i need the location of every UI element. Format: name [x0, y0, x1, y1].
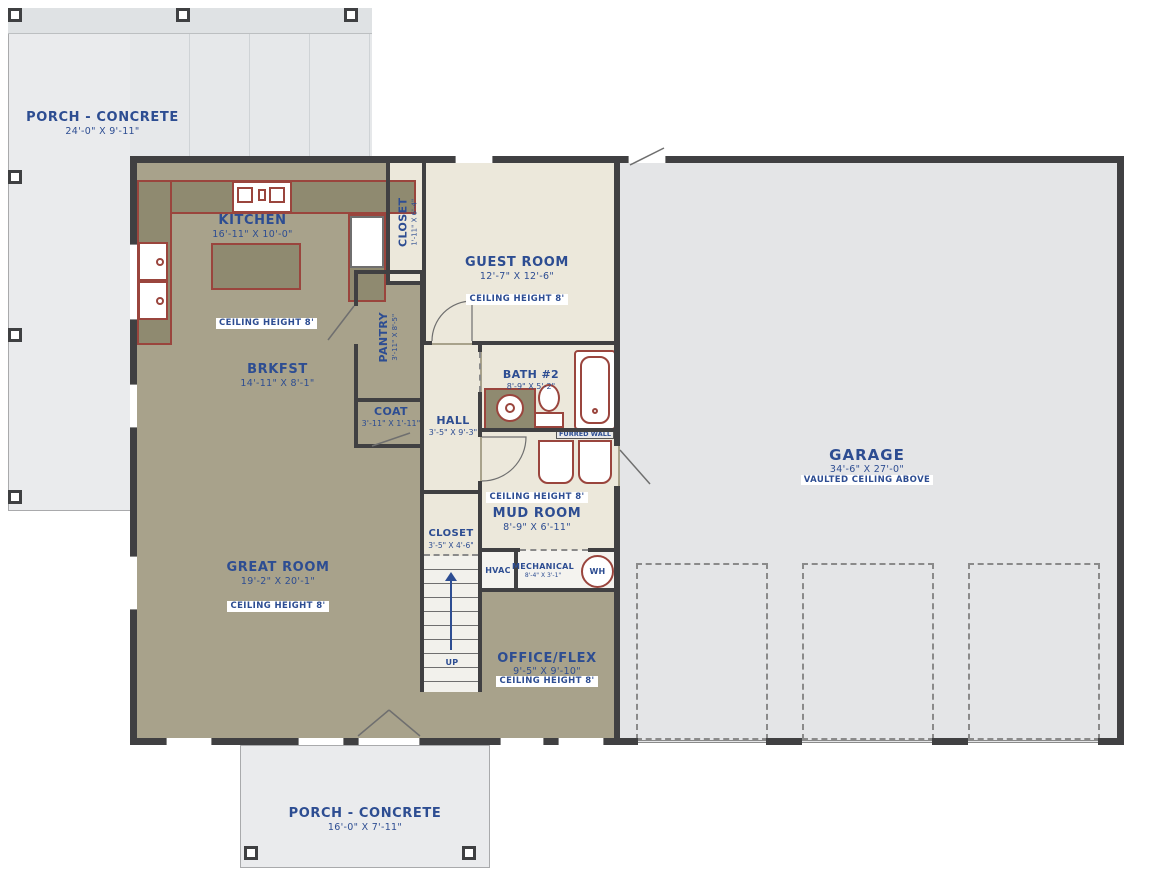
dryer-icon	[578, 440, 612, 484]
wall	[614, 162, 620, 446]
guest-room-dims: 12'-7" X 12'-6"	[442, 271, 592, 283]
mechanical-label: MECHANICAL 8'-4" X 3'-1"	[512, 562, 574, 580]
wall	[420, 272, 424, 492]
porch-post	[462, 846, 476, 860]
wall	[472, 341, 618, 345]
mud-room-dims: 8'-9" X 6'-11"	[472, 522, 602, 534]
closet-top-dims: 1'-11" X 6'-4"	[411, 197, 420, 246]
mud-room-ceiling: CEILING HEIGHT 8'	[486, 492, 587, 503]
stair-closet-dims: 3'-5" X 4'-6"	[421, 541, 481, 550]
garage-bay-outline	[802, 563, 934, 740]
sink-icon	[138, 281, 168, 320]
mud-room-name: MUD ROOM	[472, 506, 602, 522]
office-label: OFFICE/FLEX 9'-5" X 9'-10" CEILING HEIGH…	[477, 651, 617, 688]
coat-name: COAT	[358, 405, 424, 419]
wall	[354, 344, 358, 448]
porch-bottom-label: PORCH - CONCRETE 16'-0" X 7'-11"	[280, 806, 450, 834]
porch-top-dims: 24'-0" X 9'-11"	[20, 126, 185, 138]
bath2-dims: 8'-9" X 5'-2"	[488, 382, 574, 392]
garage-door	[802, 740, 932, 743]
window	[166, 738, 212, 745]
wall	[614, 486, 620, 745]
stair-closet-name: CLOSET	[421, 528, 481, 541]
wall	[932, 738, 968, 745]
toilet-tank-icon	[534, 412, 564, 428]
porch-top-name: PORCH - CONCRETE	[20, 110, 185, 126]
pantry-name: PANTRY	[377, 312, 391, 363]
porch-post	[344, 8, 358, 22]
wall	[482, 428, 618, 432]
wall	[1117, 156, 1124, 745]
kitchen-label: KITCHEN 16'-11" X 10'-0"	[180, 213, 325, 241]
guest-room-name: GUEST ROOM	[442, 255, 592, 271]
washer-icon	[538, 440, 574, 484]
window	[500, 738, 544, 745]
stairs-up-label: UP	[436, 658, 468, 668]
pantry-dims: 3'-11" X 8'-5"	[390, 312, 399, 363]
closet-top-label: CLOSET 1'-11" X 6'-4"	[388, 172, 428, 272]
porch-post	[244, 846, 258, 860]
window	[298, 738, 344, 745]
coat-dims: 3'-11" X 1'-11"	[358, 419, 424, 429]
range-icon	[232, 181, 292, 213]
brkfst-label: BRKFST 14'-11" X 8'-1"	[205, 362, 350, 390]
up-arrow-icon	[450, 578, 452, 650]
fridge-icon	[350, 216, 384, 268]
vanity-sink-icon	[496, 394, 524, 422]
pantry-label: PANTRY 3'-11" X 8'-5"	[360, 290, 416, 385]
window	[130, 384, 137, 428]
wall	[420, 492, 424, 692]
door-opening	[628, 156, 666, 163]
window	[455, 156, 493, 163]
porch-post	[176, 8, 190, 22]
wall	[478, 345, 482, 352]
hvac-label: HVAC	[482, 550, 514, 592]
guest-room-floor	[426, 162, 618, 343]
water-heater-icon: WH	[581, 555, 614, 588]
great-room-name: GREAT ROOM	[203, 560, 353, 576]
wall	[618, 738, 638, 745]
porch-bottom-name: PORCH - CONCRETE	[280, 806, 450, 822]
window	[130, 556, 137, 610]
window	[558, 738, 604, 745]
great-room-label: GREAT ROOM 19'-2" X 20'-1" CEILING HEIGH…	[203, 560, 353, 613]
porch-post	[8, 170, 22, 184]
stair-closet-label: CLOSET 3'-5" X 4'-6"	[421, 528, 481, 550]
garage-bay-outline	[636, 563, 768, 740]
mechanical-dims: 8'-4" X 3'-1"	[512, 572, 574, 580]
door-opening	[358, 738, 420, 745]
mud-room-label: CEILING HEIGHT 8' MUD ROOM 8'-9" X 6'-11…	[472, 484, 602, 534]
porch-ceiling-grid	[130, 34, 372, 160]
porch-post	[8, 328, 22, 342]
garage-bay-outline	[968, 563, 1100, 740]
wall	[424, 341, 432, 345]
wall	[1098, 738, 1124, 745]
wall	[766, 738, 802, 745]
hall-label: HALL 3'-5" X 9'-3"	[418, 414, 488, 438]
closet-top-name: CLOSET	[397, 197, 411, 246]
garage-door	[638, 740, 766, 743]
bathtub-icon	[574, 350, 616, 430]
great-room-dims: 19'-2" X 20'-1"	[203, 576, 353, 588]
bath2-name: BATH #2	[488, 368, 574, 382]
threshold	[520, 549, 588, 551]
hall-name: HALL	[418, 414, 488, 428]
office-name: OFFICE/FLEX	[477, 651, 617, 667]
brkfst-dims: 14'-11" X 8'-1"	[205, 378, 350, 390]
floor-plan: PORCH - CONCRETE 24'-0" X 9'-11" PORCH -…	[0, 0, 1157, 880]
bath2-label: BATH #2 8'-9" X 5'-2"	[488, 368, 574, 392]
garage-label: GARAGE 34'-6" X 27'-0" VAULTED CEILING A…	[792, 446, 942, 487]
wall	[130, 156, 1124, 163]
garage-door	[968, 740, 1098, 743]
up-arrow-head-icon	[445, 572, 457, 581]
pocket-door	[479, 352, 481, 392]
porch-roof-band	[8, 8, 372, 34]
wall	[354, 444, 424, 448]
garage-name: GARAGE	[792, 446, 942, 465]
kitchen-ceiling: CEILING HEIGHT 8'	[216, 310, 292, 330]
brkfst-name: BRKFST	[205, 362, 350, 378]
guest-room-label: GUEST ROOM 12'-7" X 12'-6" CEILING HEIGH…	[442, 255, 592, 306]
great-room-ceiling: CEILING HEIGHT 8'	[227, 601, 328, 612]
guest-room-ceiling: CEILING HEIGHT 8'	[466, 294, 567, 305]
wall	[354, 398, 424, 402]
mechanical-name: MECHANICAL	[512, 562, 574, 572]
porch-bottom-dims: 16'-0" X 7'-11"	[280, 822, 450, 834]
kitchen-name: KITCHEN	[180, 213, 325, 229]
porch-top-label: PORCH - CONCRETE 24'-0" X 9'-11"	[20, 110, 185, 138]
porch-post	[8, 8, 22, 22]
hall-dims: 3'-5" X 9'-3"	[418, 428, 488, 438]
window	[130, 244, 137, 320]
kitchen-island	[211, 243, 301, 290]
garage-note: VAULTED CEILING ABOVE	[801, 475, 934, 486]
sink-icon	[138, 242, 168, 281]
office-ceiling: CEILING HEIGHT 8'	[496, 676, 597, 687]
coat-label: COAT 3'-11" X 1'-11"	[358, 405, 424, 429]
kitchen-dims: 16'-11" X 10'-0"	[180, 229, 325, 241]
porch-post	[8, 490, 22, 504]
wall	[354, 272, 358, 306]
